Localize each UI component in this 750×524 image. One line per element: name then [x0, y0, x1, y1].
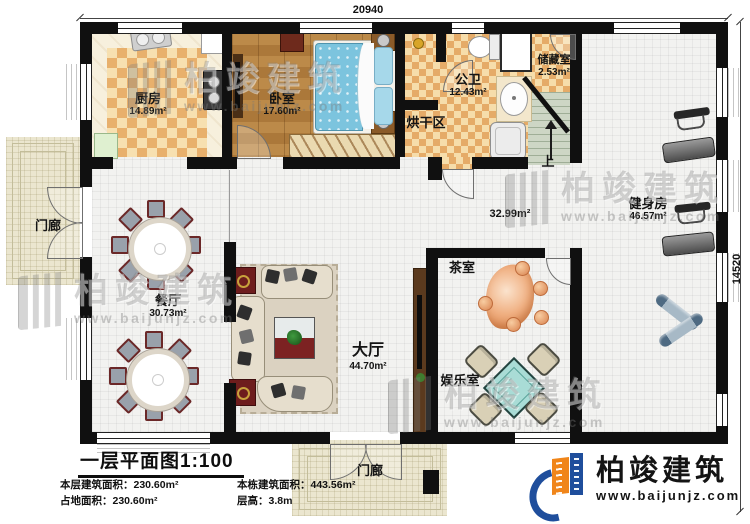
tea-stool [533, 281, 548, 296]
coffee-table [274, 317, 315, 359]
brand-name: 柏竣建筑 [596, 456, 740, 488]
wall [428, 157, 442, 180]
wall [400, 432, 515, 444]
window [97, 432, 210, 444]
stat-floor-area: 本层建筑面积：230.60m² [60, 477, 178, 492]
wall [222, 157, 237, 169]
wall [80, 432, 97, 444]
room-area-bathroom: 12.43m² [432, 87, 504, 98]
window [716, 160, 728, 212]
wall-gym-lower [570, 248, 582, 432]
wall [472, 157, 528, 169]
wall [570, 432, 728, 444]
wall [80, 257, 92, 318]
sofa-pillow [265, 269, 280, 284]
window-sill [66, 64, 80, 120]
window [716, 253, 728, 302]
window-sill [66, 318, 80, 380]
tea-stool [478, 296, 493, 311]
room-area-corridor: 32.99m² [482, 208, 538, 220]
wall-bedroom-hall [283, 157, 400, 169]
wall [80, 157, 113, 169]
stat-value: 230.60m² [113, 495, 158, 507]
brand-text: 柏竣建筑 www.baijunjz.com [596, 456, 740, 503]
room-label-bedroom: 卧室 [242, 92, 322, 106]
porch-pillar [423, 470, 439, 494]
wall [182, 22, 300, 34]
room-label-tea: 茶室 [444, 261, 480, 275]
wall-bedroom-bath [395, 22, 405, 157]
wall [716, 117, 728, 160]
wall-dining-hall [224, 242, 236, 322]
stairs-arrow-head [545, 120, 557, 129]
brand-url: www.baijunjz.com [596, 488, 740, 503]
room-label-gym: 健身房 [620, 197, 676, 211]
stairs-up-label: 上 [538, 155, 558, 169]
wall [716, 302, 728, 394]
room-area-kitchen: 14.89m² [108, 106, 188, 117]
brand-logo-icon [530, 452, 588, 510]
dimension-line-top [80, 18, 728, 19]
room-area-bedroom: 17.60m² [242, 106, 322, 117]
stat-value: 3.8m [269, 495, 293, 507]
room-label-storage: 储藏室 [527, 55, 581, 67]
treadmill-icon [658, 107, 719, 168]
wall [80, 22, 92, 64]
sofa-pillow [291, 385, 306, 400]
bed-pillow [374, 47, 393, 85]
wall-dining-hall [224, 383, 236, 432]
wall-kitchen-bedroom [222, 22, 232, 157]
room-area-hall: 44.70m² [344, 361, 392, 372]
stat-label: 层高： [237, 495, 269, 507]
stat-label: 本层建筑面积： [60, 479, 134, 491]
stat-value: 443.56m² [311, 479, 356, 491]
room-area-storage: 2.53m² [527, 67, 581, 78]
plan-title-wrap: 一层平面图1:100 [78, 446, 244, 478]
room-label-porch-left: 门廊 [26, 219, 70, 233]
room-area-dining: 30.73m² [144, 308, 192, 319]
room-label-dining: 餐厅 [146, 294, 190, 308]
wall [372, 22, 452, 34]
tea-stool [506, 317, 521, 332]
bed-duvet [315, 43, 363, 131]
wardrobe [289, 134, 396, 159]
sink-basin [500, 82, 528, 116]
plant-icon [287, 330, 302, 345]
stat-label: 本栋建筑面积： [237, 479, 311, 491]
wall [716, 212, 728, 253]
tea-stool [515, 261, 530, 276]
title-block: 一层平面图1:100 本层建筑面积：230.60m² 本栋建筑面积：443.56… [58, 444, 388, 516]
plan-title: 一层平面图1:100 [78, 446, 244, 478]
room-label-bathroom: 公卫 [438, 73, 498, 87]
sofa-pillow [283, 267, 298, 282]
round-dining-table [129, 218, 191, 280]
floor-plan-canvas: 20940 14520 [0, 0, 750, 524]
window [452, 22, 484, 34]
stat-storey-height: 层高：3.8m [237, 493, 292, 508]
brand-logo: 柏竣建筑 www.baijunjz.com [516, 448, 741, 518]
wall [80, 120, 92, 187]
sofa-pillow [237, 351, 252, 366]
room-label-kitchen: 厨房 [108, 92, 188, 106]
stat-footprint-area: 占地面积：230.60m² [60, 493, 157, 508]
tea-stool [534, 310, 549, 325]
wall-tearoom-top [438, 248, 545, 258]
wall-drying-divider [436, 34, 446, 62]
door-threshold [442, 157, 472, 169]
stat-building-area: 本栋建筑面积：443.56m² [237, 477, 355, 492]
window [515, 432, 570, 444]
wall-drying-divider [405, 100, 438, 110]
window [716, 394, 728, 426]
hanging-lamp [413, 38, 424, 49]
opening-line [229, 170, 230, 242]
bed-pillow [374, 87, 393, 125]
wall [210, 432, 330, 444]
window [614, 22, 680, 34]
kitchen-stove [203, 70, 224, 110]
dimension-top-label: 20940 [338, 4, 398, 16]
wall [484, 22, 614, 34]
round-dining-table [127, 349, 189, 411]
wall-tearoom-left [426, 248, 438, 432]
plant-icon [416, 373, 425, 382]
dining-set [107, 196, 203, 292]
room-label-entertainment: 娱乐室 [434, 374, 486, 388]
room-area-gym: 46.57m² [618, 211, 678, 222]
kitchen-fridge [94, 133, 118, 159]
bed-blanket-fold [357, 43, 374, 129]
room-label-drying: 烘干区 [398, 116, 454, 130]
stat-value: 230.60m² [134, 479, 179, 491]
window [80, 64, 92, 120]
window [716, 68, 728, 117]
window [118, 22, 182, 34]
dining-set [105, 327, 201, 423]
dimension-right-label: 14520 [731, 244, 743, 294]
room-label-hall: 大厅 [346, 343, 390, 360]
window [80, 318, 92, 380]
wall [716, 22, 728, 68]
toilet-tank [489, 34, 500, 60]
stat-label: 占地面积： [60, 495, 113, 507]
window [300, 22, 372, 34]
shower [490, 122, 526, 160]
